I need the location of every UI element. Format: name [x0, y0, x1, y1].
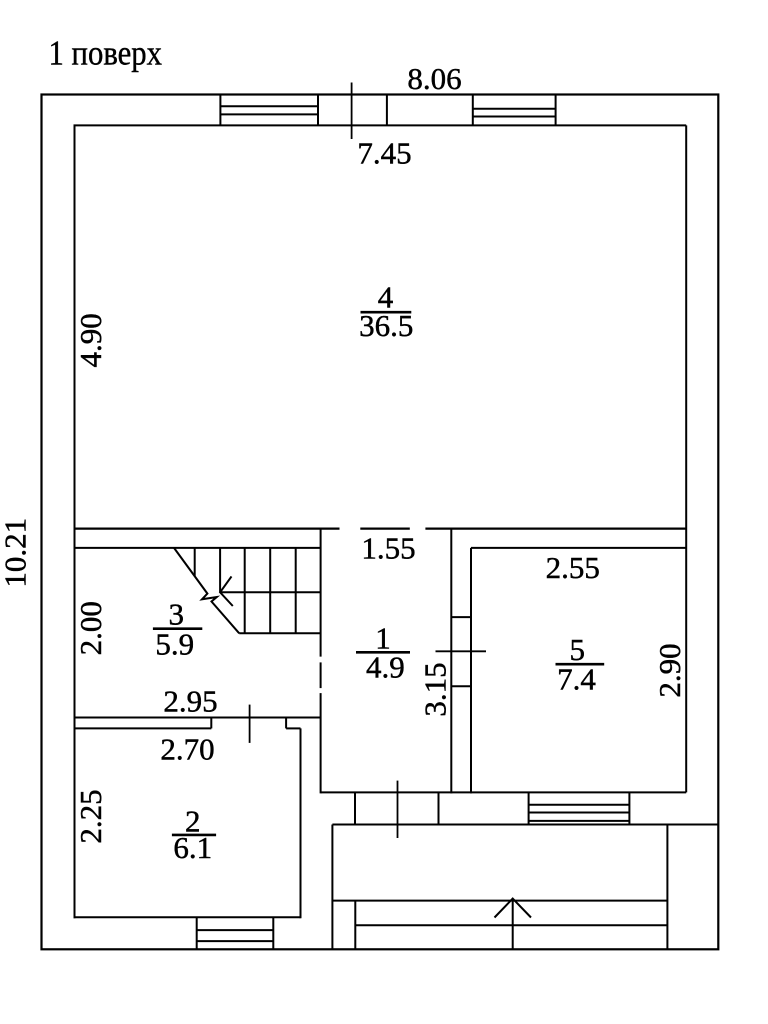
- svg-text:2.25: 2.25: [73, 789, 108, 843]
- svg-text:2.55: 2.55: [546, 550, 600, 585]
- svg-text:4.9: 4.9: [366, 650, 405, 685]
- svg-text:10.21: 10.21: [0, 518, 33, 588]
- svg-text:6.1: 6.1: [173, 830, 212, 865]
- svg-text:2.95: 2.95: [163, 684, 217, 719]
- svg-text:1.55: 1.55: [361, 531, 415, 566]
- svg-text:3.15: 3.15: [418, 662, 453, 716]
- svg-text:2.70: 2.70: [160, 732, 214, 767]
- svg-text:7.4: 7.4: [557, 661, 596, 696]
- svg-text:1 поверх: 1 поверх: [49, 35, 163, 73]
- svg-text:4.90: 4.90: [73, 313, 108, 367]
- svg-text:8.06: 8.06: [407, 61, 461, 96]
- svg-text:2.90: 2.90: [652, 643, 687, 697]
- svg-text:36.5: 36.5: [359, 308, 413, 343]
- svg-text:7.45: 7.45: [357, 136, 411, 171]
- svg-text:2.00: 2.00: [73, 601, 108, 655]
- svg-text:5.9: 5.9: [155, 627, 194, 662]
